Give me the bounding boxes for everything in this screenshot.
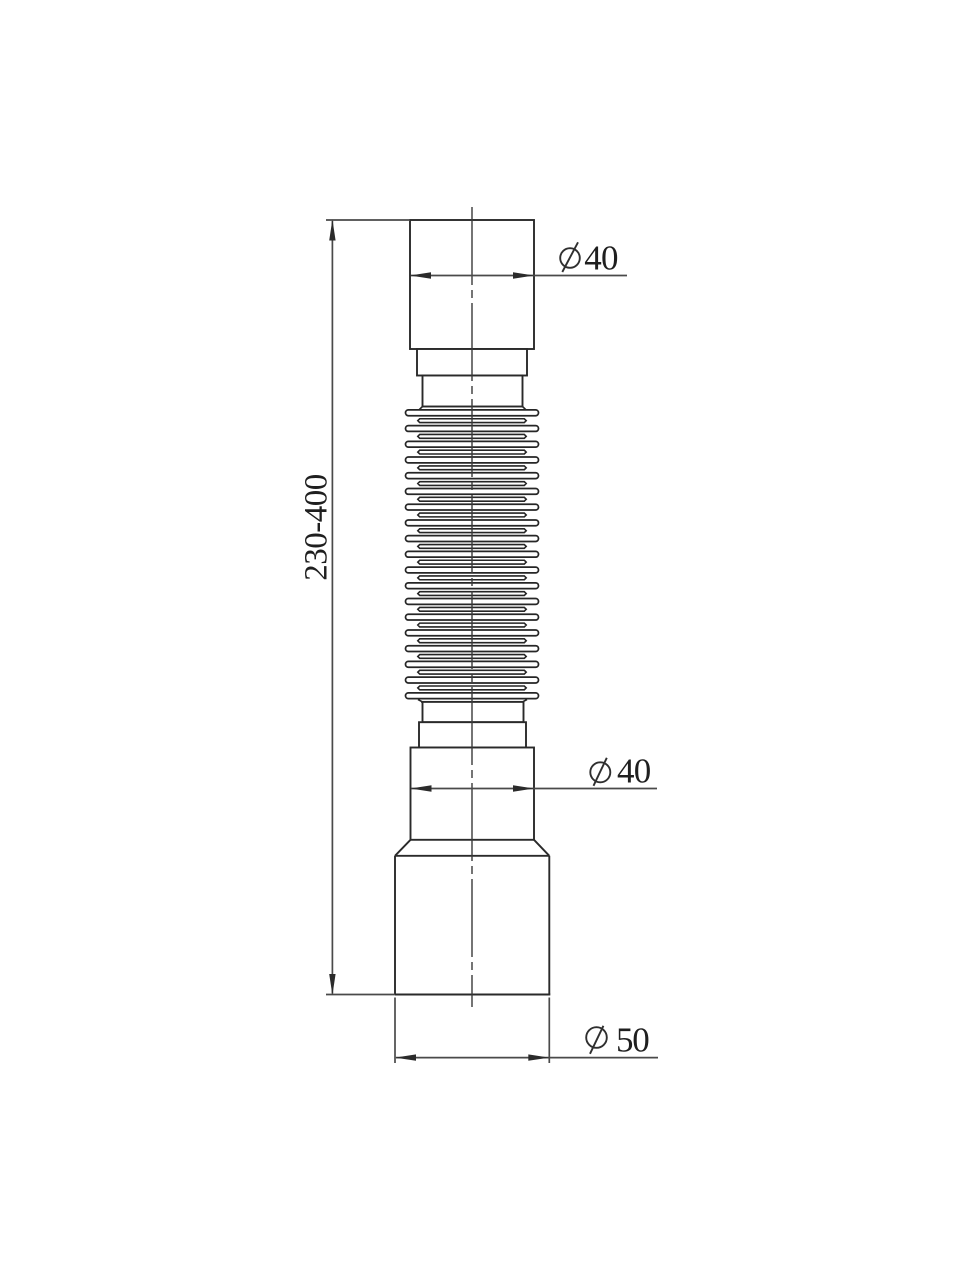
svg-text:230-400: 230-400 — [299, 474, 335, 581]
svg-text:40: 40 — [617, 752, 651, 791]
svg-text:40: 40 — [584, 239, 618, 278]
svg-text:50: 50 — [616, 1021, 649, 1060]
